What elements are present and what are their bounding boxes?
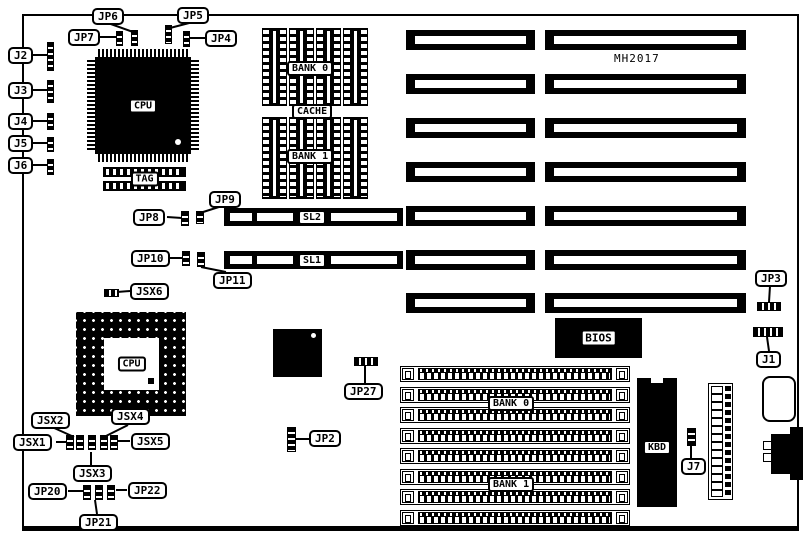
callout-jp10: JP10 [131, 250, 170, 267]
cpu2-label: CPU [117, 357, 145, 372]
jumper-j7 [687, 428, 696, 446]
callout-j7: J7 [681, 458, 706, 475]
tag-label: TAG [130, 172, 158, 187]
callout-jp5: JP5 [177, 7, 209, 24]
callout-jsx2: JSX2 [31, 412, 70, 429]
jumper-j4 [47, 113, 54, 130]
jumper-jsx5 [110, 435, 118, 450]
callout-jp7: JP7 [68, 29, 100, 46]
jumper-jsx4 [100, 435, 108, 450]
callout-jp8: JP8 [133, 209, 165, 226]
cache-bank0-label: BANK 0 [287, 61, 333, 76]
callout-jp20: JP20 [28, 483, 67, 500]
callout-j5: J5 [8, 135, 33, 152]
kbd-label: KBD [643, 440, 671, 455]
jumper-jp20 [83, 485, 91, 500]
simm-bank1-label: BANK 1 [488, 477, 534, 492]
callout-jsx1: JSX1 [13, 434, 52, 451]
jumper-jp27 [354, 357, 378, 366]
jumper-jp4 [183, 31, 190, 47]
jumper-jp6 [131, 30, 138, 46]
jumper-jp8 [181, 211, 189, 226]
cpu1-label: CPU [129, 98, 157, 113]
callout-jp27: JP27 [344, 383, 383, 400]
callout-jp11: JP11 [213, 272, 252, 289]
callout-jp2: JP2 [309, 430, 341, 447]
jumper-jsx6 [104, 289, 119, 297]
callout-jsx5: JSX5 [131, 433, 170, 450]
jumper-jsx1 [66, 435, 74, 450]
jumper-jp21 [95, 485, 103, 500]
callout-jsx3: JSX3 [73, 465, 112, 482]
callout-jp6: JP6 [92, 8, 124, 25]
callout-jp4: JP4 [205, 30, 237, 47]
simm-bank0-label: BANK 0 [488, 396, 534, 411]
callout-j3: J3 [8, 82, 33, 99]
callout-jsx6: JSX6 [130, 283, 169, 300]
jumper-jp3 [757, 302, 781, 311]
callout-jp22: JP22 [128, 482, 167, 499]
jumper-jsx3 [88, 435, 96, 450]
sl2-label: SL2 [298, 210, 326, 225]
jumper-j5 [47, 137, 54, 152]
jumper-jp10 [182, 251, 190, 266]
callout-j1: J1 [756, 351, 781, 368]
callout-j2: J2 [8, 47, 33, 64]
jumper-jsx2 [76, 435, 84, 450]
jumper-jp11 [197, 252, 205, 267]
callout-j6: J6 [8, 157, 33, 174]
callout-jp9: JP9 [209, 191, 241, 208]
sl1-label: SL1 [298, 253, 326, 268]
callout-j4: J4 [8, 113, 33, 130]
jumper-j3 [47, 80, 54, 103]
jumper-jp5 [165, 25, 172, 44]
callout-jsx4: JSX4 [111, 408, 150, 425]
jumper-j1 [753, 327, 783, 337]
callout-jp3: JP3 [755, 270, 787, 287]
jumper-jp22 [107, 485, 115, 500]
motherboard-diagram: CPU TAG BANK 0 CACHE BANK 1 MH2017 SL2 [0, 0, 807, 541]
jumper-j2 [47, 42, 54, 71]
cache-label: CACHE [292, 104, 332, 119]
jumper-jp7 [116, 31, 123, 46]
jumper-jp9 [196, 211, 204, 224]
cache-bank1-label: BANK 1 [287, 149, 333, 164]
jumper-jp2 [287, 427, 296, 452]
bios-label: BIOS [580, 330, 617, 347]
jumper-j6 [47, 159, 54, 175]
callout-jp21: JP21 [79, 514, 118, 531]
